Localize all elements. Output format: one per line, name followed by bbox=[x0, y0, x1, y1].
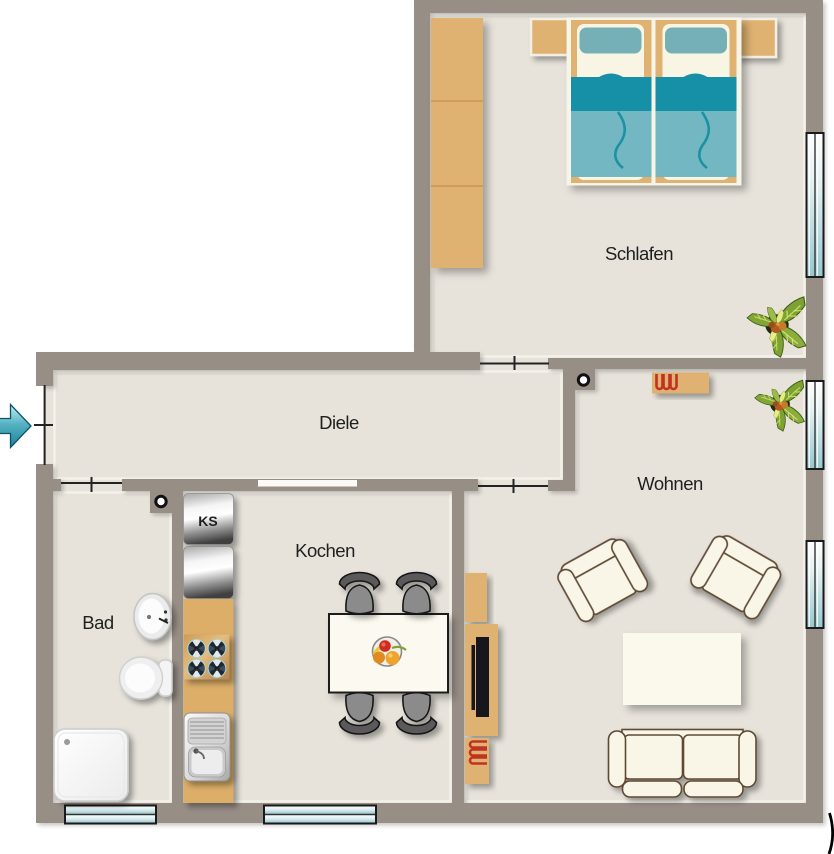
svg-text:Bad: Bad bbox=[82, 612, 114, 633]
svg-text:Schlafen: Schlafen bbox=[605, 243, 673, 264]
svg-text:Diele: Diele bbox=[319, 412, 359, 433]
svg-text:Wohnen: Wohnen bbox=[637, 473, 703, 494]
svg-text:KS: KS bbox=[198, 513, 217, 529]
svg-text:Kochen: Kochen bbox=[295, 540, 355, 561]
